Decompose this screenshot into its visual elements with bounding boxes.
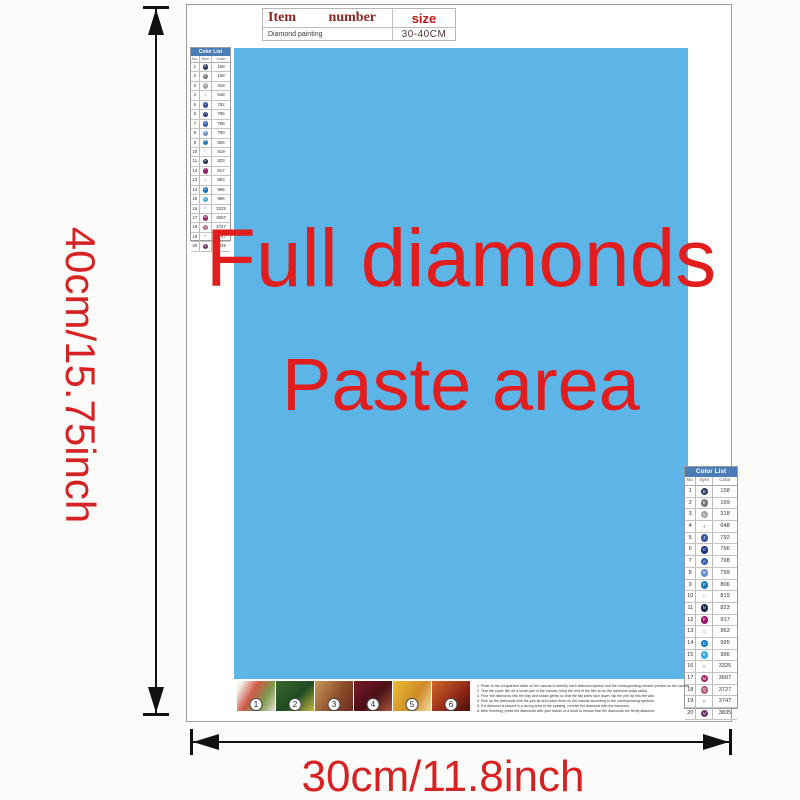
row-symbol-cell: J (200, 101, 212, 109)
row-dmc-code: 819 (212, 148, 230, 156)
size-value-cell: 30-40CM (393, 28, 455, 40)
step-photo: 5 (393, 681, 431, 711)
column-sym: Sym (200, 56, 212, 62)
symbol-dot: 9 (701, 569, 709, 577)
color-list-row: 5 J 792 (685, 533, 737, 545)
column-no: No. (191, 56, 200, 62)
row-dmc-code: 798 (212, 120, 230, 128)
symbol-dot: B (701, 488, 709, 496)
row-dmc-code: 158 (212, 63, 230, 71)
row-dmc-code: 799 (713, 568, 737, 579)
row-dmc-code: 792 (713, 533, 737, 544)
step-number-badge: 1 (250, 698, 263, 711)
row-dmc-code: 963 (212, 176, 230, 184)
symbol-dot: J (701, 534, 709, 542)
row-symbol-cell: J (696, 533, 713, 544)
row-symbol-cell: B (696, 486, 713, 497)
row-number: 13 (685, 626, 696, 637)
symbol-dot: M (701, 675, 709, 683)
color-list-row: 11 N 823 (685, 603, 737, 615)
row-dmc-code: 318 (212, 82, 230, 90)
row-dmc-code: 963 (713, 626, 737, 637)
step-photo: 3 (315, 681, 353, 711)
row-dmc-code: 806 (713, 580, 737, 591)
color-list-row: 11 N 823 (191, 157, 230, 166)
color-list-row: 7 A 798 (685, 556, 737, 568)
row-symbol-cell: A (200, 120, 212, 128)
dimension-cap-bottom (143, 713, 169, 716)
row-symbol-cell: E (200, 72, 212, 80)
row-symbol-cell: D (200, 186, 212, 194)
symbol-dot: C (203, 149, 209, 155)
row-dmc-code: 995 (212, 186, 230, 194)
color-list-column-headers: No. Sym Color (191, 56, 230, 63)
row-symbol-cell: N (696, 603, 713, 614)
row-dmc-code: 3747 (713, 696, 737, 707)
row-number: 9 (685, 580, 696, 591)
color-list-row: 13 Q 963 (685, 626, 737, 638)
row-number: 3 (191, 82, 200, 90)
row-dmc-code: 3325 (713, 661, 737, 672)
row-symbol-cell: R (696, 661, 713, 672)
paste-area-title-line2: Paste area (282, 348, 640, 422)
row-number: 7 (685, 556, 696, 567)
instruction-line: 6. After finishing, press the diamonds w… (477, 709, 707, 714)
row-symbol-cell: 9 (696, 568, 713, 579)
row-number: 1 (191, 63, 200, 71)
item-label: Item (268, 10, 296, 26)
symbol-dot: N (203, 159, 209, 165)
color-list-row: 12 F 917 (685, 615, 737, 627)
row-symbol-cell: G (696, 509, 713, 520)
color-list-row: 6 O 796 (685, 544, 737, 556)
row-number: 1 (685, 486, 696, 497)
row-dmc-code: 996 (212, 195, 230, 203)
row-dmc-code: 169 (713, 498, 737, 509)
symbol-dot: K (701, 651, 709, 659)
symbol-dot: Q (203, 178, 209, 184)
row-number: 4 (191, 91, 200, 99)
color-list-row: 6 O 796 (191, 110, 230, 119)
symbol-dot: R (203, 206, 209, 212)
row-symbol-cell: E (696, 498, 713, 509)
row-dmc-code: 823 (212, 157, 230, 165)
color-list-row: 4 4 648 (685, 521, 737, 533)
row-number: 5 (685, 533, 696, 544)
row-dmc-code: 648 (713, 521, 737, 532)
row-dmc-code: 3325 (212, 205, 230, 213)
symbol-dot: D (701, 640, 709, 648)
row-number: 13 (191, 176, 200, 184)
height-dimension-label: 40cm/15.75inch (56, 227, 104, 524)
row-dmc-code: 158 (713, 486, 737, 497)
row-number: 11 (191, 157, 200, 165)
color-list-row: 8 9 799 (685, 568, 737, 580)
arrow-right-icon (703, 734, 729, 750)
row-number: 10 (685, 591, 696, 602)
arrow-down-icon (148, 687, 164, 713)
item-size-table-header: Item number size (263, 9, 455, 28)
symbol-dot: B (203, 64, 209, 70)
row-number: 18 (191, 223, 200, 231)
row-symbol-cell: P (696, 580, 713, 591)
color-list-row: 1 B 158 (191, 63, 230, 72)
row-number: 5 (191, 101, 200, 109)
step-number-badge: 4 (367, 698, 380, 711)
row-dmc-code: 3727 (713, 685, 737, 696)
row-symbol-cell: R (200, 205, 212, 213)
row-dmc-code: 792 (212, 101, 230, 109)
step-photo: 6 (432, 681, 470, 711)
row-number: 11 (685, 603, 696, 614)
symbol-dot: O (203, 112, 209, 118)
symbol-dot: Q (701, 628, 709, 636)
row-symbol-cell: K (696, 650, 713, 661)
color-list-row: 2 E 169 (191, 72, 230, 81)
row-symbol-cell: P (200, 139, 212, 147)
row-dmc-code: 995 (713, 638, 737, 649)
row-dmc-code: 799 (212, 129, 230, 137)
color-list-row: 1 B 158 (685, 486, 737, 498)
symbol-dot: E (203, 74, 209, 80)
symbol-dot: K (203, 197, 209, 203)
symbol-dot: N (701, 604, 709, 612)
symbol-dot: D (203, 187, 209, 193)
row-symbol-cell: N (200, 157, 212, 165)
color-list-row: 2 E 169 (685, 498, 737, 510)
row-number: 4 (685, 521, 696, 532)
symbol-dot: A (203, 121, 209, 127)
color-list-row: 10 C 819 (191, 148, 230, 157)
row-dmc-code: 823 (713, 603, 737, 614)
row-number: 17 (191, 214, 200, 222)
color-list-row: 15 K 996 (685, 650, 737, 662)
row-symbol-cell: 4 (200, 91, 212, 99)
number-label: number (329, 10, 376, 26)
symbol-dot: 4 (701, 523, 709, 531)
row-symbol-cell: F (696, 615, 713, 626)
row-dmc-code: 3835 (713, 708, 737, 719)
color-list-row: 7 A 798 (191, 120, 230, 129)
row-number: 12 (685, 615, 696, 626)
step-photo: 4 (354, 681, 392, 711)
item-value-cell: Diamond painting (263, 28, 393, 40)
size-header-cell: size (393, 9, 455, 27)
row-dmc-code: 996 (713, 650, 737, 661)
row-number: 16 (685, 661, 696, 672)
color-list-row: 17 M 3607 (685, 673, 737, 685)
column-no: No. (685, 477, 696, 485)
color-list-row: 4 4 648 (191, 91, 230, 100)
row-symbol-cell: O (200, 110, 212, 118)
row-number: 12 (191, 167, 200, 175)
row-symbol-cell: F (200, 167, 212, 175)
row-dmc-code: 917 (713, 615, 737, 626)
row-number: 8 (191, 129, 200, 137)
dimension-line-vertical (155, 8, 157, 714)
row-symbol-cell: C (200, 148, 212, 156)
row-dmc-code: 798 (713, 556, 737, 567)
width-dimension-label: 30cm/11.8inch (302, 752, 585, 800)
symbol-dot: 4 (203, 93, 209, 99)
symbol-dot: J (203, 102, 209, 108)
row-dmc-code: 819 (713, 591, 737, 602)
color-list-title: Color List (191, 48, 230, 56)
row-dmc-code: 169 (212, 72, 230, 80)
color-list-title: Color List (685, 467, 737, 477)
row-number: 14 (191, 186, 200, 194)
symbol-dot: O (701, 546, 709, 554)
row-number: 8 (685, 568, 696, 579)
row-number: 7 (191, 120, 200, 128)
symbol-dot: F (203, 168, 209, 174)
color-list-row: 10 C 819 (685, 591, 737, 603)
instruction-text-block: 1. Refer to the comparison table on the … (477, 684, 707, 713)
column-color: Color (713, 477, 737, 485)
symbol-dot: G (701, 511, 709, 519)
item-size-table: Item number size Diamond painting 30-40C… (262, 8, 456, 41)
step-thumbnails: 1 2 3 4 5 6 (237, 681, 470, 711)
symbol-dot: F (701, 616, 709, 624)
color-list-row: 15 K 996 (191, 195, 230, 204)
symbol-dot: 9 (203, 131, 209, 137)
color-list-row: 12 F 917 (191, 167, 230, 176)
row-number: 16 (191, 205, 200, 213)
row-dmc-code: 318 (713, 509, 737, 520)
row-dmc-code: 796 (713, 544, 737, 555)
row-number: 15 (685, 650, 696, 661)
row-number: 20 (191, 242, 200, 250)
column-color: Color (212, 56, 230, 62)
step-number-badge: 6 (445, 698, 458, 711)
symbol-dot: P (203, 140, 209, 146)
paste-area: Full diamonds Paste area (234, 48, 688, 679)
product-image: Item number size Diamond painting 30-40C… (0, 0, 800, 800)
row-symbol-cell: M (696, 673, 713, 684)
row-dmc-code: 806 (212, 139, 230, 147)
step-number-badge: 5 (406, 698, 419, 711)
symbol-dot: P (701, 581, 709, 589)
row-number: 15 (191, 195, 200, 203)
row-symbol-cell: 4 (696, 521, 713, 532)
symbol-dot: G (203, 83, 209, 89)
row-symbol-cell: Q (200, 176, 212, 184)
row-symbol-cell: D (696, 638, 713, 649)
symbol-dot: A (701, 558, 709, 566)
column-sym: Sym (696, 477, 713, 485)
color-list-column-headers: No. Sym Color (685, 477, 737, 486)
dimension-cap-right (729, 729, 732, 755)
row-symbol-cell: G (200, 82, 212, 90)
row-dmc-code: 917 (212, 167, 230, 175)
height-dimension-line (143, 6, 169, 716)
color-list-row: 3 G 318 (191, 82, 230, 91)
row-dmc-code: 648 (212, 91, 230, 99)
row-number: 2 (685, 498, 696, 509)
row-number: 10 (191, 148, 200, 156)
paste-area-title-line1: Full diamonds (206, 218, 716, 300)
row-dmc-code: 3607 (713, 673, 737, 684)
row-symbol-cell: A (696, 556, 713, 567)
item-number-header-cell: Item number (263, 9, 393, 27)
dimension-line-horizontal (192, 741, 730, 743)
color-list-row: 8 9 799 (191, 129, 230, 138)
row-number: 6 (191, 110, 200, 118)
step-photo: 2 (276, 681, 314, 711)
symbol-dot: E (701, 499, 709, 507)
color-list-row: 13 Q 963 (191, 176, 230, 185)
row-symbol-cell: O (696, 544, 713, 555)
color-list-row: 5 J 792 (191, 101, 230, 110)
color-list-row: 14 D 995 (191, 186, 230, 195)
row-number: 3 (685, 509, 696, 520)
row-symbol-cell: Q (696, 626, 713, 637)
symbol-dot: C (701, 593, 709, 601)
row-number: 14 (685, 638, 696, 649)
row-symbol-cell: B (200, 63, 212, 71)
color-list-row: 9 P 806 (191, 139, 230, 148)
row-dmc-code: 796 (212, 110, 230, 118)
row-number: 17 (685, 673, 696, 684)
item-size-table-row: Diamond painting 30-40CM (263, 28, 455, 40)
row-number: 2 (191, 72, 200, 80)
color-list-top-left: Color List No. Sym Color 1 B 158 2 E (190, 47, 231, 241)
step-photo: 1 (237, 681, 275, 711)
color-list-row: 9 P 806 (685, 580, 737, 592)
color-list-row: 16 R 3325 (685, 661, 737, 673)
step-number-badge: 3 (328, 698, 341, 711)
color-list-row: 3 G 318 (685, 509, 737, 521)
row-symbol-cell: C (696, 591, 713, 602)
row-symbol-cell: 9 (200, 129, 212, 137)
row-number: 9 (191, 139, 200, 147)
row-number: 19 (191, 233, 200, 241)
symbol-dot: R (701, 663, 709, 671)
color-list-row: 14 D 995 (685, 638, 737, 650)
color-list-bottom-right: Color List No. Sym Color 1 B 158 2 E (684, 466, 738, 709)
row-symbol-cell: K (200, 195, 212, 203)
step-number-badge: 2 (289, 698, 302, 711)
row-number: 6 (685, 544, 696, 555)
canvas-sheet: Item number size Diamond painting 30-40C… (186, 4, 732, 722)
